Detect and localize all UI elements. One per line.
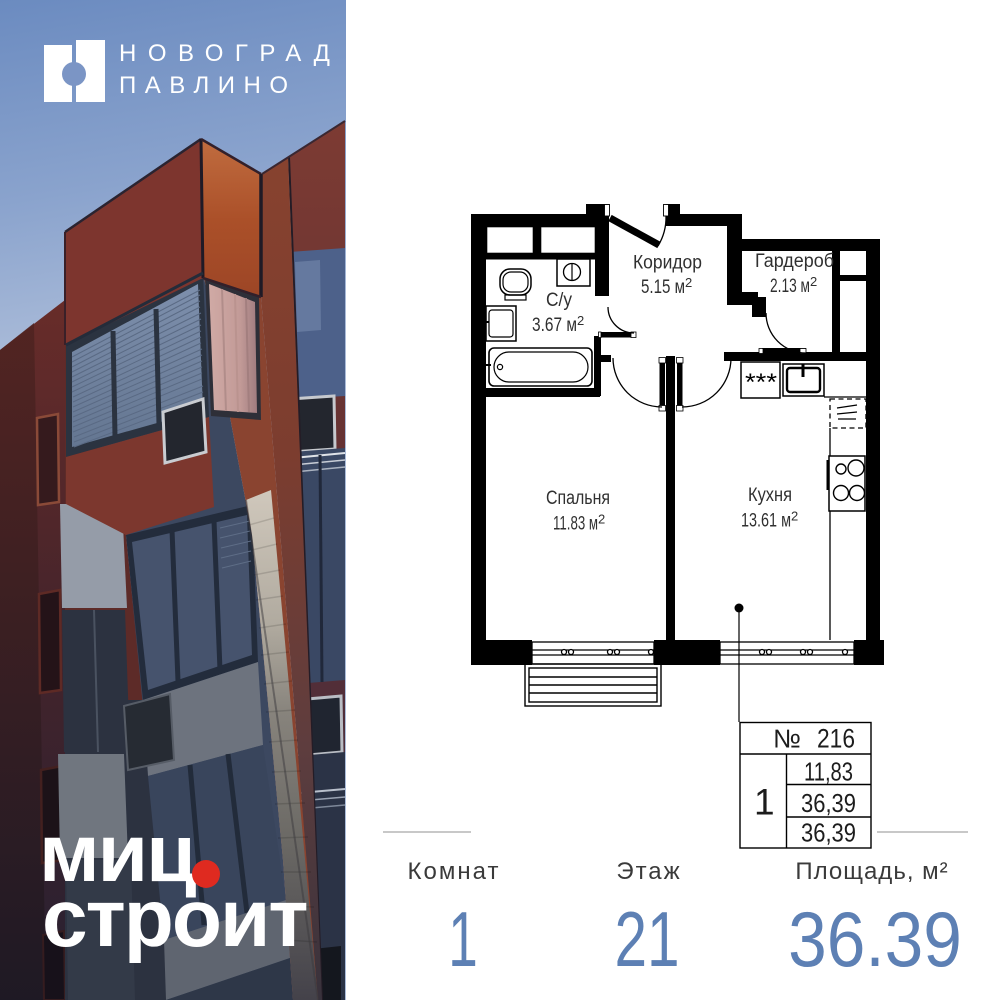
svg-text:1: 1	[754, 782, 775, 823]
svg-text:36,39: 36,39	[801, 788, 856, 818]
svg-text:Кухня: Кухня	[748, 485, 792, 506]
svg-text:***: ***	[745, 369, 777, 396]
svg-text:11,83: 11,83	[804, 757, 853, 787]
svg-text:С/у: С/у	[546, 290, 572, 311]
svg-text:11.83 м2: 11.83 м2	[553, 512, 605, 535]
svg-text:2.13 м2: 2.13 м2	[770, 274, 817, 297]
svg-text:Спальня: Спальня	[546, 488, 610, 509]
svg-text:13.61 м2: 13.61 м2	[741, 509, 798, 532]
svg-text:Гардероб: Гардероб	[755, 251, 834, 272]
svg-text:216: 216	[817, 724, 855, 754]
svg-text:Коридор: Коридор	[633, 253, 702, 274]
svg-text:№: №	[773, 724, 801, 754]
svg-text:5.15 м2: 5.15 м2	[641, 275, 692, 298]
svg-text:3.67 м2: 3.67 м2	[532, 313, 584, 336]
svg-text:36,39: 36,39	[801, 818, 856, 848]
